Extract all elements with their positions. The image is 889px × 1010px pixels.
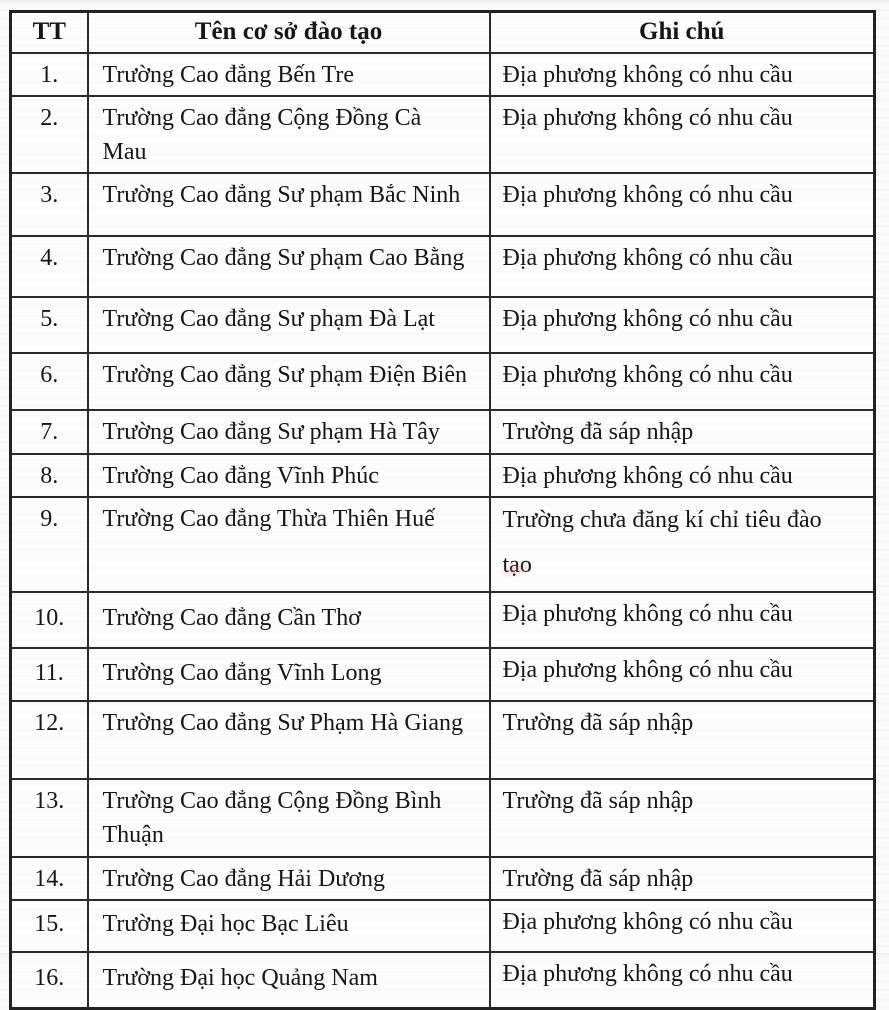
table-row: 12. Trường Cao đẳng Sư Phạm Hà Giang Trư… — [11, 701, 875, 779]
institution-name-cell: Trường Cao đẳng Cần Thơ — [88, 592, 490, 648]
note-text: Địa phương không có nhu cầu — [503, 101, 864, 135]
note-cell: Địa phương không có nhu cầu — [490, 173, 875, 236]
note-cell: Trường chưa đăng kí chỉ tiêu đào tạo — [490, 497, 875, 592]
note-cell: Trường đã sáp nhập — [490, 701, 875, 779]
institution-name-cell: Trường Cao đẳng Sư phạm Hà Tây — [88, 410, 490, 454]
institution-name: Trường Cao đẳng Thừa Thiên Huế — [103, 502, 471, 536]
scanned-document-page: { "colors": { "paper": "#fbfbfa", "borde… — [0, 0, 889, 953]
institution-name: Trường Cao đẳng Sư phạm Điện Biên — [103, 358, 471, 392]
note-text: Địa phương không có nhu cầu — [503, 957, 864, 991]
row-number-cell: 16. — [11, 952, 88, 1008]
note-cell: Địa phương không có nhu cầu — [490, 592, 875, 648]
row-number-cell: 4. — [11, 236, 88, 297]
table-row: 3. Trường Cao đẳng Sư phạm Bắc Ninh Địa … — [11, 173, 875, 236]
note-text: Trường đã sáp nhập — [503, 415, 864, 449]
note-cell: Trường đã sáp nhập — [490, 410, 875, 454]
row-number-cell: 8. — [11, 454, 88, 497]
header-cell-note: Ghi chú — [490, 12, 875, 54]
institution-name-cell: Trường Cao đẳng Vĩnh Long — [88, 648, 490, 701]
institution-name: Trường Cao đẳng Sư phạm Hà Tây — [103, 415, 471, 449]
note-text: Trường đã sáp nhập — [503, 784, 864, 818]
table-row: 8. Trường Cao đẳng Vĩnh Phúc Địa phương … — [11, 454, 875, 497]
row-number-cell: 15. — [11, 900, 88, 952]
institution-name-cell: Trường Cao đẳng Sư phạm Bắc Ninh — [88, 173, 490, 236]
table-row: 13. Trường Cao đẳng Cộng Đồng Bình Thuận… — [11, 779, 875, 857]
table-row: 11. Trường Cao đẳng Vĩnh Long Địa phương… — [11, 648, 875, 701]
note-cell: Địa phương không có nhu cầu — [490, 952, 875, 1008]
institution-name-cell: Trường Cao đẳng Hải Dương — [88, 857, 490, 900]
institution-name: Trường Cao đẳng Sư phạm Cao Bằng — [103, 241, 471, 275]
note-text: Địa phương không có nhu cầu — [503, 241, 864, 275]
table-row: 9. Trường Cao đẳng Thừa Thiên Huế Trường… — [11, 497, 875, 592]
table-row: 1. Trường Cao đẳng Bến Tre Địa phương kh… — [11, 53, 875, 96]
table-header-row: TT Tên cơ sở đào tạo Ghi chú — [11, 12, 875, 54]
row-number-cell: 9. — [11, 497, 88, 592]
note-text: Trường chưa đăng kí chỉ tiêu đào tạo — [503, 498, 851, 588]
table-row: 10. Trường Cao đẳng Cần Thơ Địa phương k… — [11, 592, 875, 648]
institution-name-cell: Trường Đại học Bạc Liêu — [88, 900, 490, 952]
note-text: Địa phương không có nhu cầu — [503, 302, 864, 336]
row-number-cell: 14. — [11, 857, 88, 900]
institution-name-cell: Trường Đại học Quảng Nam — [88, 952, 490, 1008]
note-cell: Địa phương không có nhu cầu — [490, 297, 875, 353]
institution-name: Trường Đại học Bạc Liêu — [103, 907, 471, 941]
table-row: 14. Trường Cao đẳng Hải Dương Trường đã … — [11, 857, 875, 900]
institution-name: Trường Cao đẳng Vĩnh Long — [103, 656, 471, 690]
row-number-cell: 6. — [11, 353, 88, 410]
note-text: Địa phương không có nhu cầu — [503, 58, 864, 92]
row-number-cell: 13. — [11, 779, 88, 857]
institution-name: Trường Cao đẳng Bến Tre — [103, 58, 471, 92]
note-cell: Trường đã sáp nhập — [490, 779, 875, 857]
note-cell: Địa phương không có nhu cầu — [490, 53, 875, 96]
note-cell: Địa phương không có nhu cầu — [490, 900, 875, 952]
table-row: 2. Trường Cao đẳng Cộng Đồng Cà Mau Địa … — [11, 96, 875, 173]
table-row: 6. Trường Cao đẳng Sư phạm Điện Biên Địa… — [11, 353, 875, 410]
institution-name: Trường Cao đẳng Cần Thơ — [103, 601, 471, 635]
institution-name: Trường Cao đẳng Cộng Đồng Cà Mau — [103, 101, 471, 169]
row-number-cell: 3. — [11, 173, 88, 236]
institution-name: Trường Đại học Quảng Nam — [103, 961, 471, 995]
institution-name-cell: Trường Cao đẳng Cộng Đồng Bình Thuận — [88, 779, 490, 857]
institution-name-cell: Trường Cao đẳng Vĩnh Phúc — [88, 454, 490, 497]
note-text: Trường đã sáp nhập — [503, 706, 864, 740]
note-text: Địa phương không có nhu cầu — [503, 653, 864, 687]
institution-name-cell: Trường Cao đẳng Sư phạm Điện Biên — [88, 353, 490, 410]
note-text: Địa phương không có nhu cầu — [503, 178, 864, 212]
institution-name: Trường Cao đẳng Cộng Đồng Bình Thuận — [103, 784, 471, 852]
table-row: 15. Trường Đại học Bạc Liêu Địa phương k… — [11, 900, 875, 952]
note-cell: Địa phương không có nhu cầu — [490, 353, 875, 410]
table-row: 4. Trường Cao đẳng Sư phạm Cao Bằng Địa … — [11, 236, 875, 297]
institution-name-cell: Trường Cao đẳng Sư phạm Cao Bằng — [88, 236, 490, 297]
row-number-cell: 1. — [11, 53, 88, 96]
note-cell: Địa phương không có nhu cầu — [490, 236, 875, 297]
institution-name: Trường Cao đẳng Sư phạm Bắc Ninh — [103, 178, 471, 212]
note-text: Địa phương không có nhu cầu — [503, 597, 864, 631]
institution-name-cell: Trường Cao đẳng Sư Phạm Hà Giang — [88, 701, 490, 779]
row-number-cell: 12. — [11, 701, 88, 779]
table-row: 16. Trường Đại học Quảng Nam Địa phương … — [11, 952, 875, 1008]
institution-name-cell: Trường Cao đẳng Bến Tre — [88, 53, 490, 96]
header-cell-name: Tên cơ sở đào tạo — [88, 12, 490, 54]
note-text: Địa phương không có nhu cầu — [503, 905, 864, 939]
note-text: Địa phương không có nhu cầu — [503, 459, 864, 493]
note-cell: Trường đã sáp nhập — [490, 857, 875, 900]
institution-name: Trường Cao đẳng Sư phạm Đà Lạt — [103, 302, 471, 336]
institution-name-cell: Trường Cao đẳng Sư phạm Đà Lạt — [88, 297, 490, 353]
row-number-cell: 7. — [11, 410, 88, 454]
note-cell: Địa phương không có nhu cầu — [490, 454, 875, 497]
training-institutions-table: TT Tên cơ sở đào tạo Ghi chú 1. Trường C… — [9, 10, 876, 1010]
row-number-cell: 10. — [11, 592, 88, 648]
institution-name: Trường Cao đẳng Vĩnh Phúc — [103, 459, 471, 493]
row-number-cell: 11. — [11, 648, 88, 701]
note-text: Địa phương không có nhu cầu — [503, 358, 864, 392]
header-cell-tt: TT — [11, 12, 88, 54]
note-cell: Địa phương không có nhu cầu — [490, 96, 875, 173]
table-row: 5. Trường Cao đẳng Sư phạm Đà Lạt Địa ph… — [11, 297, 875, 353]
table-row: 7. Trường Cao đẳng Sư phạm Hà Tây Trường… — [11, 410, 875, 454]
institution-name-cell: Trường Cao đẳng Thừa Thiên Huế — [88, 497, 490, 592]
note-cell: Địa phương không có nhu cầu — [490, 648, 875, 701]
note-text: Trường đã sáp nhập — [503, 862, 864, 896]
row-number-cell: 2. — [11, 96, 88, 173]
institution-name: Trường Cao đẳng Hải Dương — [103, 862, 471, 896]
institution-name-cell: Trường Cao đẳng Cộng Đồng Cà Mau — [88, 96, 490, 173]
institution-name: Trường Cao đẳng Sư Phạm Hà Giang — [103, 706, 471, 740]
row-number-cell: 5. — [11, 297, 88, 353]
